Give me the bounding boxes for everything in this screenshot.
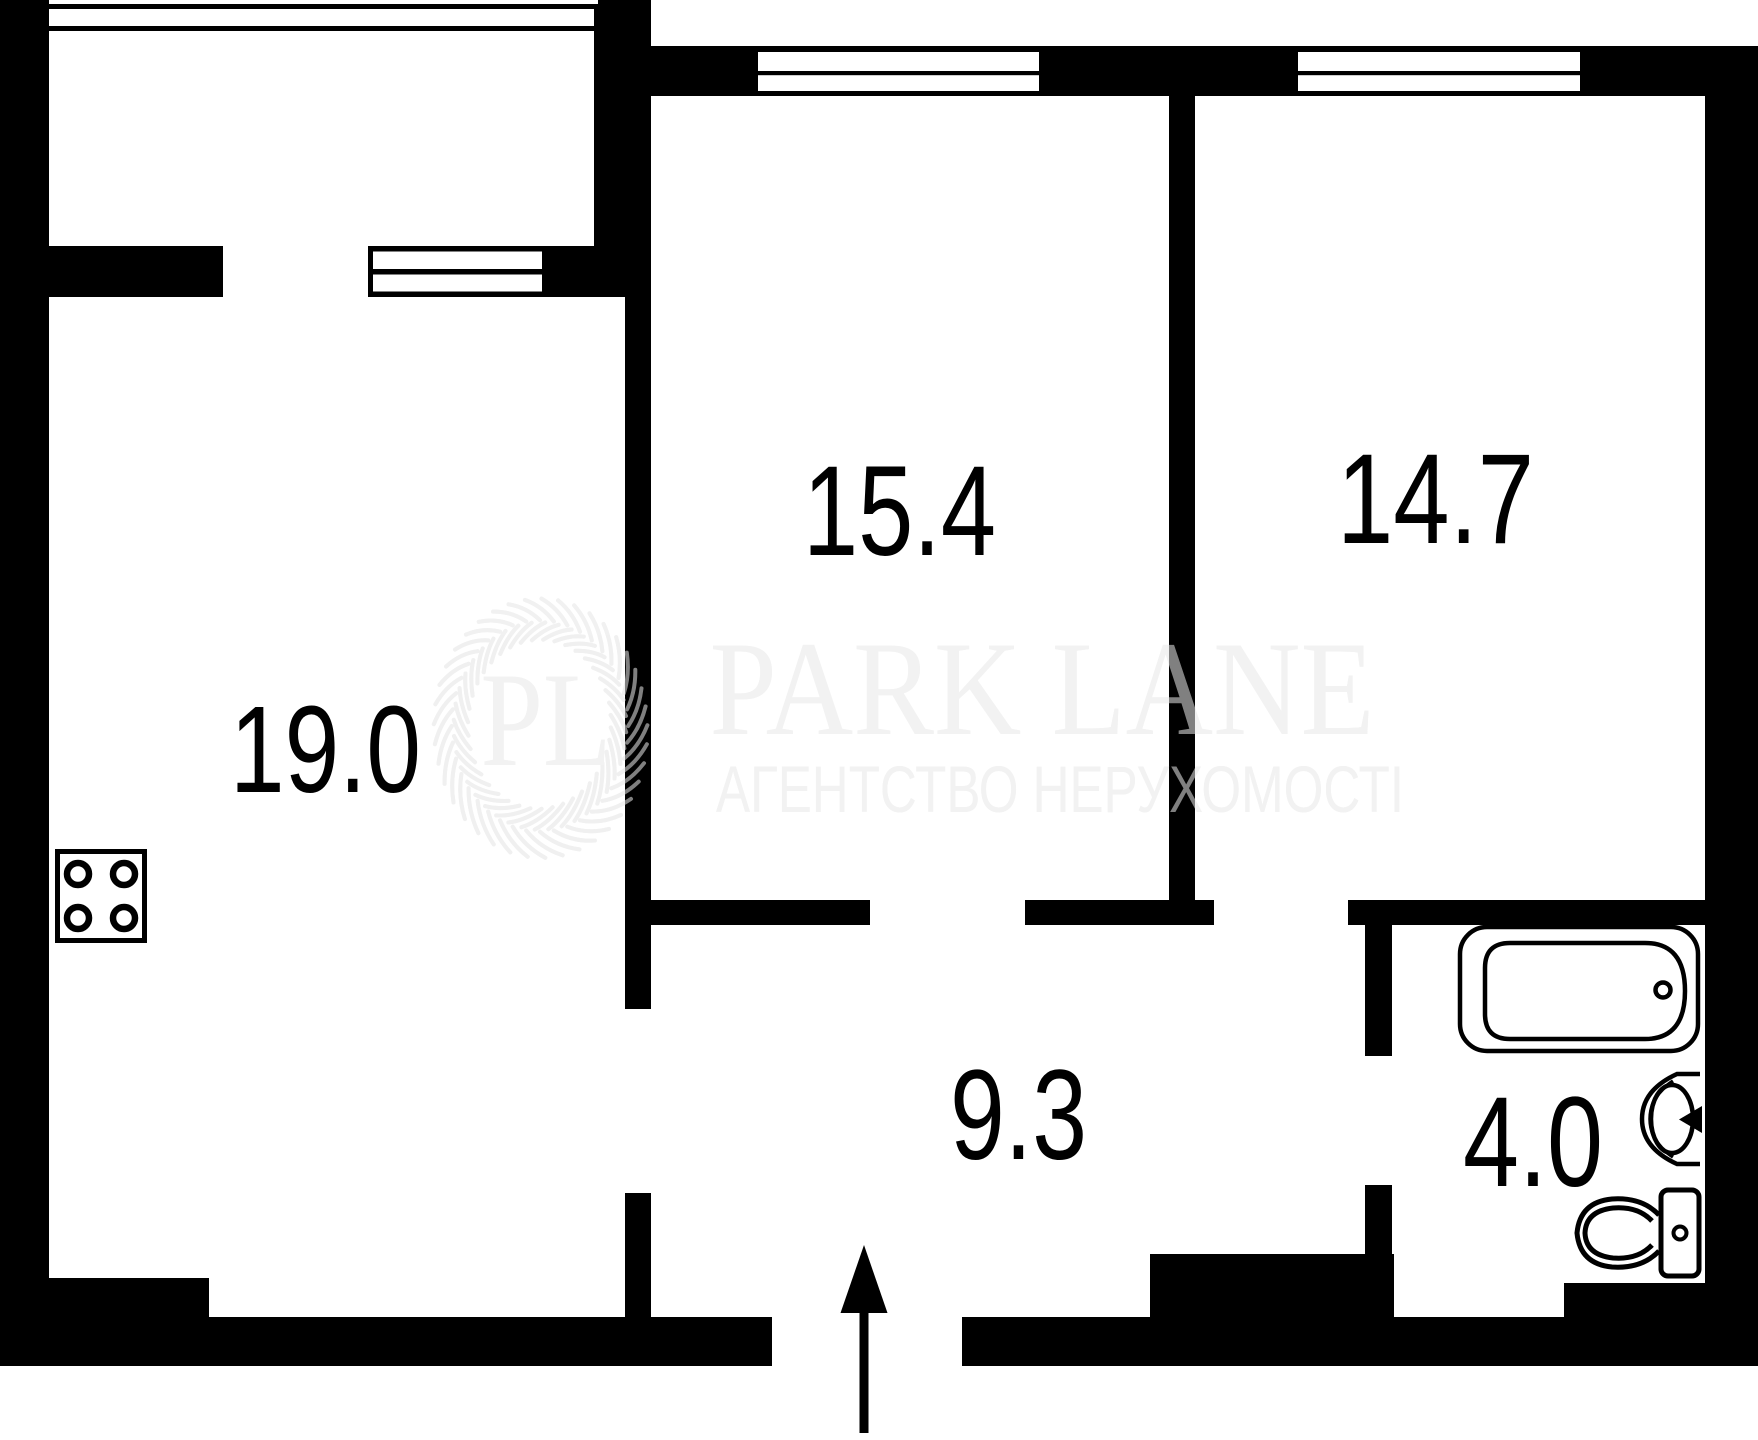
- svg-text:19.0: 19.0: [230, 682, 421, 819]
- svg-text:PL: PL: [481, 646, 612, 795]
- svg-text:АГЕНТСТВО НЕРУХОМОСТІ: АГЕНТСТВО НЕРУХОМОСТІ: [716, 752, 1404, 826]
- svg-text:14.7: 14.7: [1337, 428, 1534, 571]
- svg-text:4.0: 4.0: [1463, 1071, 1603, 1214]
- svg-text:PARK LANE: PARK LANE: [710, 615, 1375, 764]
- svg-text:9.3: 9.3: [950, 1044, 1087, 1187]
- svg-text:15.4: 15.4: [803, 440, 996, 583]
